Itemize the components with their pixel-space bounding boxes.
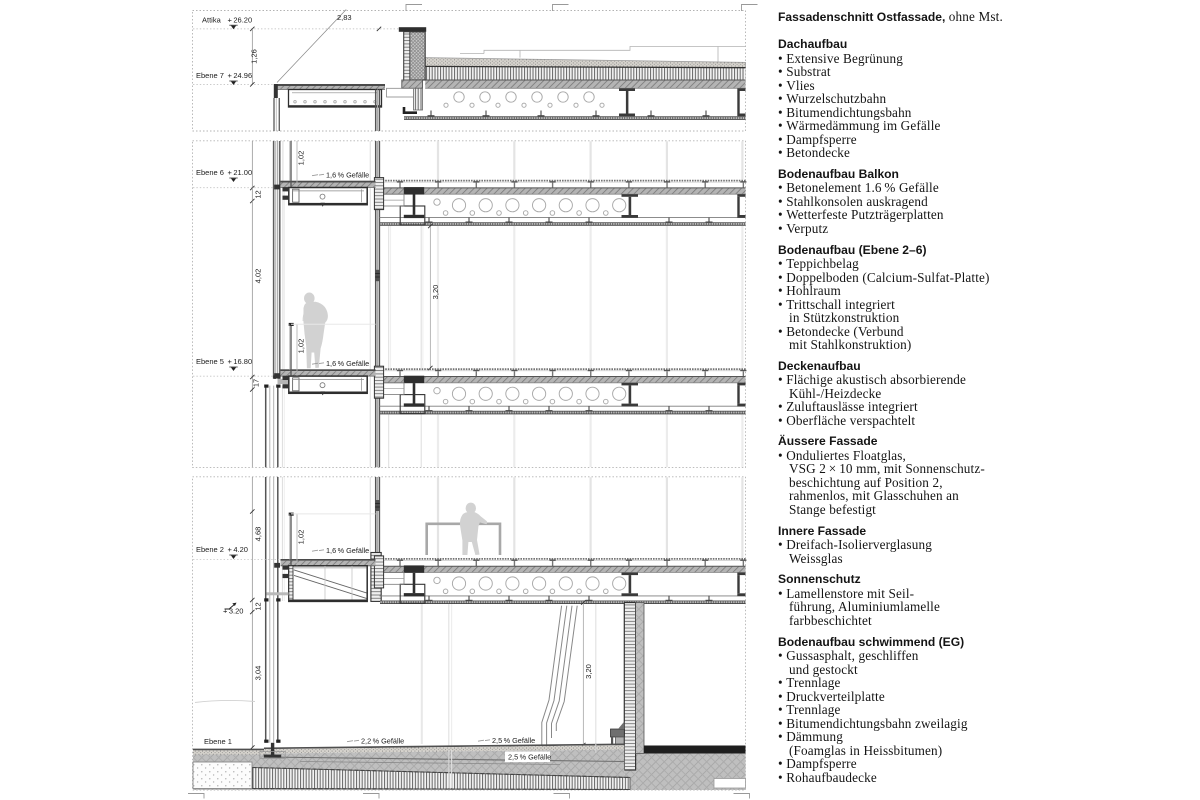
svg-text:+ 26.20: + 26.20 (228, 16, 253, 25)
svg-text:2,5 % Gefälle: 2,5 % Gefälle (492, 736, 535, 745)
svg-text:Ebene 6: Ebene 6 (196, 168, 224, 177)
svg-text:+ 3.20: + 3.20 (223, 607, 243, 616)
svg-text:2,5 % Gefälle: 2,5 % Gefälle (508, 753, 551, 762)
svg-text:12: 12 (253, 190, 262, 198)
svg-text:1,02: 1,02 (297, 530, 306, 545)
svg-text:1,6 % Gefälle: 1,6 % Gefälle (326, 170, 369, 179)
svg-text:+ 4.20: + 4.20 (228, 545, 248, 554)
svg-text:2,83: 2,83 (337, 13, 352, 22)
svg-text:2,2 % Gefälle: 2,2 % Gefälle (361, 736, 404, 745)
svg-text:Attika: Attika (202, 16, 222, 25)
svg-text:1,6 % Gefälle: 1,6 % Gefälle (326, 359, 369, 368)
svg-text:4,02: 4,02 (253, 269, 262, 284)
svg-text:3,20: 3,20 (584, 664, 593, 679)
svg-text:1,02: 1,02 (297, 151, 306, 166)
svg-text:1,02: 1,02 (297, 339, 306, 354)
svg-text:17: 17 (251, 379, 260, 387)
svg-text:1,6 % Gefälle: 1,6 % Gefälle (326, 546, 369, 555)
svg-text:12: 12 (253, 602, 262, 610)
svg-text:Ebene 1: Ebene 1 (204, 737, 232, 746)
svg-text:+ 21.00: + 21.00 (228, 168, 253, 177)
svg-text:4,68: 4,68 (253, 527, 262, 542)
svg-text:3,20: 3,20 (431, 285, 440, 300)
svg-text:+ 24.96: + 24.96 (228, 71, 253, 80)
svg-text:1,26: 1,26 (249, 49, 258, 64)
svg-text:Ebene 2: Ebene 2 (196, 545, 224, 554)
svg-text:Ebene 7: Ebene 7 (196, 71, 224, 80)
svg-text:3,04: 3,04 (253, 666, 262, 681)
svg-text:Ebene 5: Ebene 5 (196, 357, 224, 366)
svg-text:+ 16.80: + 16.80 (228, 357, 253, 366)
